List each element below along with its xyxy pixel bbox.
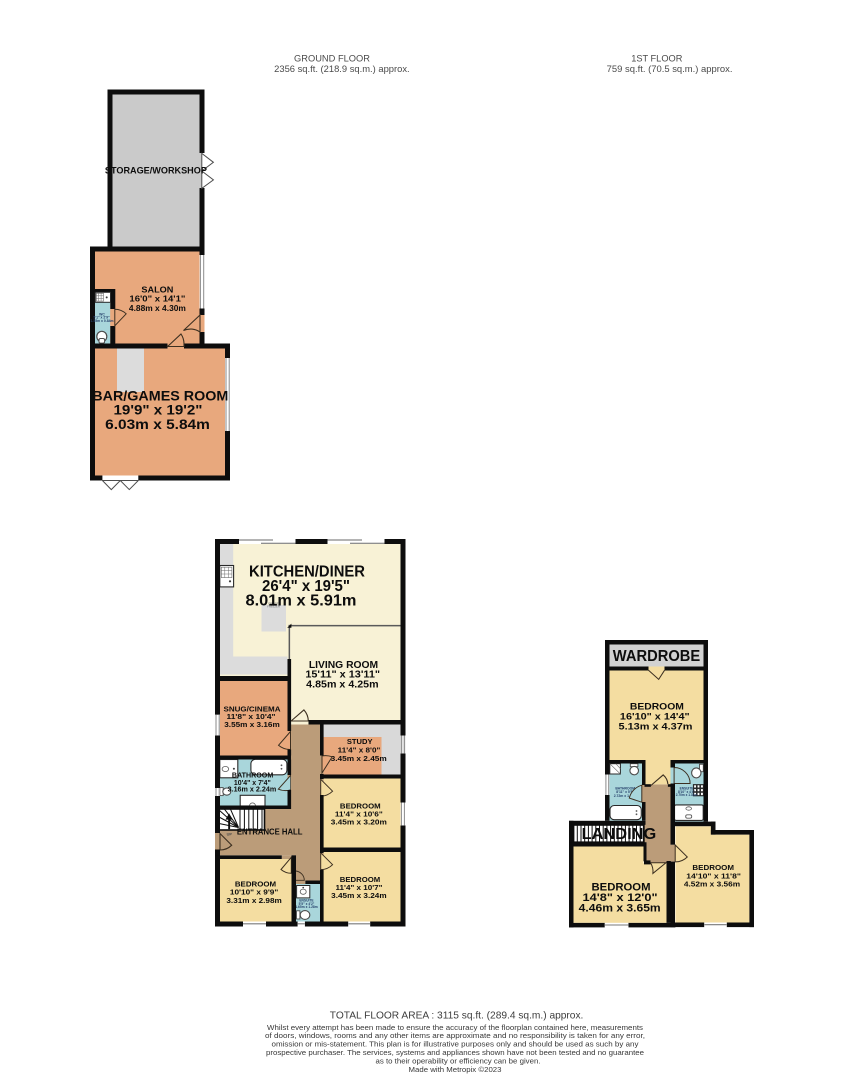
svg-text:BAR/GAMES ROOM: BAR/GAMES ROOM <box>92 389 228 404</box>
svg-text:WARDROBE: WARDROBE <box>613 648 701 665</box>
svg-text:LANDING: LANDING <box>582 826 657 843</box>
svg-text:3.45m x 2.45m: 3.45m x 2.45m <box>331 754 388 763</box>
svg-text:759 sq.ft. (70.5 sq.m.) approx: 759 sq.ft. (70.5 sq.m.) approx. <box>607 64 733 74</box>
svg-text:3.31m x 2.98m: 3.31m x 2.98m <box>226 896 282 905</box>
svg-text:2356 sq.ft. (218.9 sq.m.) appr: 2356 sq.ft. (218.9 sq.m.) approx. <box>274 64 410 74</box>
svg-text:5.13m x 4.37m: 5.13m x 4.37m <box>619 721 693 731</box>
svg-text:BEDROOM: BEDROOM <box>630 701 684 711</box>
svg-text:3.55m x 3.16m: 3.55m x 3.16m <box>224 720 280 729</box>
svg-text:3.45m x 3.20m: 3.45m x 3.20m <box>331 818 388 827</box>
svg-text:BATHROOM: BATHROOM <box>232 773 273 780</box>
svg-text:1.55m x 0.84m: 1.55m x 0.84m <box>91 319 114 323</box>
svg-text:1ST FLOOR: 1ST FLOOR <box>631 53 682 63</box>
svg-text:TOTAL FLOOR AREA : 3115 sq.ft.: TOTAL FLOOR AREA : 3115 sq.ft. (289.4 sq… <box>330 1010 584 1021</box>
svg-text:ENTRANCE HALL: ENTRANCE HALL <box>237 827 303 836</box>
svg-text:GROUND FLOOR: GROUND FLOOR <box>294 53 370 63</box>
svg-text:16'10" x 14'4": 16'10" x 14'4" <box>620 711 690 721</box>
svg-text:2.70m x 1.33m: 2.70m x 1.33m <box>676 793 698 797</box>
svg-text:Made with Metropix ©2023: Made with Metropix ©2023 <box>409 1065 502 1074</box>
svg-text:8.01m x 5.91m: 8.01m x 5.91m <box>246 592 357 609</box>
svg-text:3.16m x 2.24m: 3.16m x 2.24m <box>228 786 277 793</box>
svg-text:3.45m x 3.24m: 3.45m x 3.24m <box>331 891 387 900</box>
svg-text:4.52m x 3.56m: 4.52m x 3.56m <box>684 879 740 888</box>
svg-text:4.88m x 4.30m: 4.88m x 4.30m <box>129 303 186 313</box>
svg-text:1.65m x 1.28m: 1.65m x 1.28m <box>295 905 317 909</box>
svg-text:19'9" x 19'2": 19'9" x 19'2" <box>114 403 203 418</box>
svg-text:STORAGE/WORKSHOP: STORAGE/WORKSHOP <box>105 166 207 176</box>
svg-text:UP: UP <box>227 833 233 837</box>
svg-text:6.03m x 5.84m: 6.03m x 5.84m <box>105 417 210 432</box>
svg-text:4.46m x 3.65m: 4.46m x 3.65m <box>579 902 661 914</box>
svg-text:4.85m x 4.25m: 4.85m x 4.25m <box>306 680 379 691</box>
